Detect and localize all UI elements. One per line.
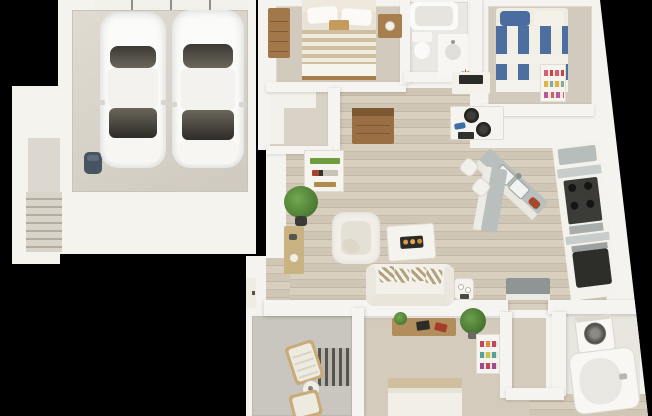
car-mirror-left xyxy=(97,100,105,105)
vanity-sink xyxy=(445,44,461,60)
dresser-tv xyxy=(459,75,483,84)
master-shelf xyxy=(476,334,500,374)
bed-white-throw xyxy=(496,54,568,64)
car-hood xyxy=(179,140,237,164)
shelf-toys-row xyxy=(544,81,564,87)
candle xyxy=(417,239,422,244)
wall-corridor-south xyxy=(506,388,564,400)
media-desk xyxy=(450,106,504,140)
bed-striped-duvet xyxy=(302,30,376,66)
floorplan-scene: ✶ xyxy=(0,0,652,416)
front-door xyxy=(246,278,256,308)
dresser-drawers xyxy=(270,12,288,54)
wall-patio-master xyxy=(352,308,364,416)
coffee-table xyxy=(386,223,436,262)
washer xyxy=(574,313,616,353)
bedroom1-bed xyxy=(302,0,376,80)
master-bed xyxy=(388,378,462,416)
master-console xyxy=(392,318,456,336)
car-roof xyxy=(181,68,235,110)
shelf-toys-row xyxy=(544,70,564,76)
toilet-1 xyxy=(412,32,432,60)
stove-top xyxy=(563,177,602,225)
sofa-side-table xyxy=(454,278,474,300)
plant-foliage xyxy=(460,308,486,334)
car-roof xyxy=(108,68,158,108)
car-rear-glass xyxy=(110,46,156,68)
table-decor-dark xyxy=(460,294,469,299)
striped-pillow xyxy=(425,268,443,285)
bedroom1-dresser xyxy=(268,8,290,58)
plant-pot xyxy=(295,216,307,226)
vanity-faucet xyxy=(451,40,455,44)
burner xyxy=(570,201,579,210)
candle xyxy=(403,239,408,244)
lounge-cushion xyxy=(292,392,320,416)
shelf-items-row xyxy=(480,341,498,347)
shelf-items-row xyxy=(480,352,498,358)
wall-corridor-bath xyxy=(552,312,566,396)
car-hood xyxy=(106,138,160,162)
bedroom1-nightstand xyxy=(378,14,402,38)
coffee-cup xyxy=(465,287,471,293)
living-console-table xyxy=(284,226,304,274)
console-shelves xyxy=(356,118,390,140)
console-plant xyxy=(394,312,407,325)
sofa xyxy=(366,264,454,306)
door-handle xyxy=(252,291,255,295)
toilet-tank xyxy=(412,32,432,42)
console-red-decor xyxy=(434,322,448,333)
bedroom2-shelf xyxy=(540,64,566,102)
speaker xyxy=(476,122,491,137)
striped-pillow xyxy=(394,268,410,283)
bedroom2-dresser xyxy=(452,72,490,94)
table-tray xyxy=(400,235,424,249)
closet1-shelf-top xyxy=(270,92,316,108)
car-windshield xyxy=(182,110,234,140)
car-mirror-right xyxy=(239,102,247,107)
console-laptop xyxy=(416,320,430,331)
staircase xyxy=(26,192,62,252)
bed-foot-frame xyxy=(302,76,376,80)
desk-black-item xyxy=(458,132,474,139)
console-top xyxy=(352,108,394,116)
speaker xyxy=(464,108,479,123)
wall-closet1-east xyxy=(328,88,340,150)
car-mirror-right xyxy=(161,100,169,105)
bathtub-1 xyxy=(410,2,458,30)
master-bathtub xyxy=(568,346,641,416)
car-windshield xyxy=(109,108,157,138)
refrigerator xyxy=(572,248,612,288)
living-plant xyxy=(284,186,318,226)
burner xyxy=(584,181,593,190)
books-mixed xyxy=(312,170,338,176)
console-decor-white xyxy=(290,254,298,262)
burner xyxy=(568,183,577,192)
bed-pillow-blue xyxy=(500,11,530,26)
bed-fold xyxy=(388,388,462,393)
console-decor-dark xyxy=(289,234,297,240)
stairs-landing xyxy=(28,138,60,192)
tub-basin xyxy=(415,6,453,26)
coffee-cup xyxy=(458,284,464,290)
burner xyxy=(586,199,595,208)
table-lamp xyxy=(385,21,395,31)
car-mirror-left xyxy=(169,102,177,107)
bed-pillow-white xyxy=(534,11,564,26)
sofa-back xyxy=(374,294,446,306)
toilet-bowl xyxy=(414,42,430,59)
shelf-items-row xyxy=(480,363,498,369)
trash-bin-lid xyxy=(87,155,99,161)
armchair xyxy=(332,212,380,264)
built-in-desk xyxy=(506,278,550,300)
car-right xyxy=(172,10,244,168)
desk-front xyxy=(506,294,550,300)
tub-faucet xyxy=(619,373,628,380)
wall-corridor-west xyxy=(500,312,512,398)
candle xyxy=(410,239,415,244)
car-left xyxy=(100,12,166,168)
hall-console xyxy=(352,108,394,144)
car-rear-glass xyxy=(183,44,233,68)
shelf-toys-row xyxy=(544,92,564,98)
plant-foliage xyxy=(284,186,318,218)
books-green xyxy=(310,158,340,164)
